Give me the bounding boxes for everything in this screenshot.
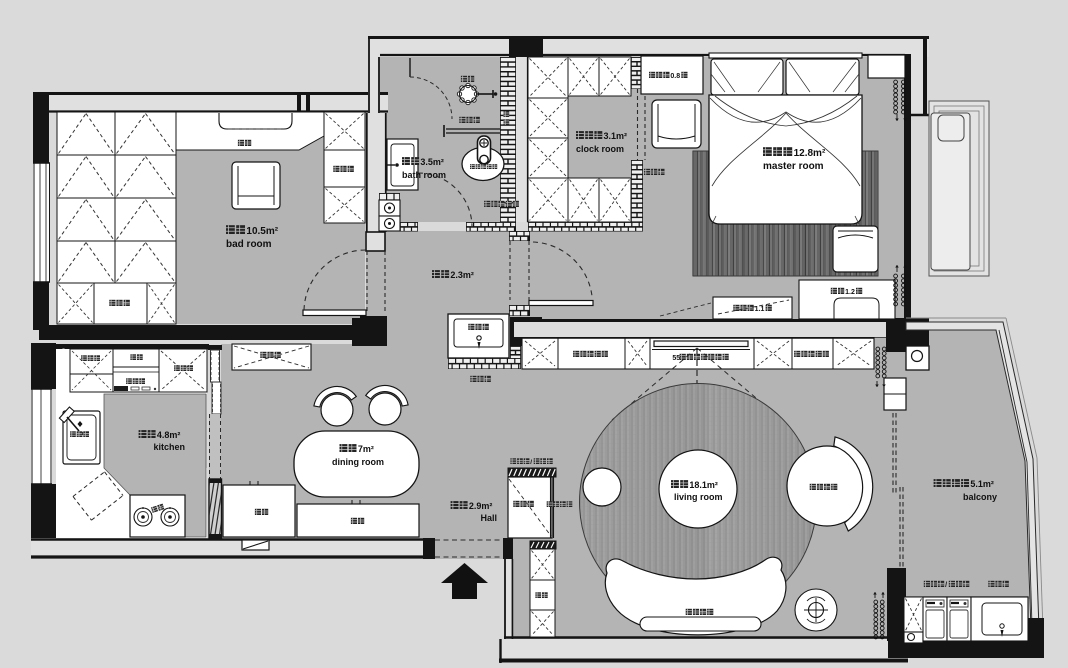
svg-text:3.1m²: 3.1m²	[604, 131, 628, 141]
svg-text:living room: living room	[674, 492, 723, 502]
svg-text:kitchen: kitchen	[153, 442, 185, 452]
svg-text:3.5m²: 3.5m²	[420, 157, 444, 167]
svg-text:1.1: 1.1	[755, 306, 765, 313]
svg-text:10.5m²: 10.5m²	[246, 226, 278, 237]
svg-text:Hall: Hall	[480, 513, 497, 523]
svg-text:0.8: 0.8	[670, 73, 680, 80]
svg-text:/: /	[530, 459, 532, 466]
svg-text:bath room: bath room	[402, 170, 446, 180]
svg-text:bad room: bad room	[226, 239, 272, 250]
svg-text:balcony: balcony	[963, 492, 997, 502]
svg-text:7m²: 7m²	[358, 444, 374, 454]
svg-text:master room: master room	[763, 161, 824, 172]
svg-text:12.8m²: 12.8m²	[794, 148, 826, 159]
svg-text:2.9m²: 2.9m²	[469, 501, 493, 511]
svg-text:2.3m²: 2.3m²	[450, 270, 474, 280]
svg-text:dining room: dining room	[332, 457, 384, 467]
svg-text:55: 55	[672, 355, 680, 362]
svg-text:clock room: clock room	[576, 144, 624, 154]
svg-text:/: /	[945, 582, 947, 589]
svg-text:5.1m²: 5.1m²	[970, 479, 994, 489]
svg-text:18.1m²: 18.1m²	[689, 480, 718, 490]
svg-text:4.8m²: 4.8m²	[157, 430, 181, 440]
svg-text:1.2: 1.2	[845, 289, 855, 296]
